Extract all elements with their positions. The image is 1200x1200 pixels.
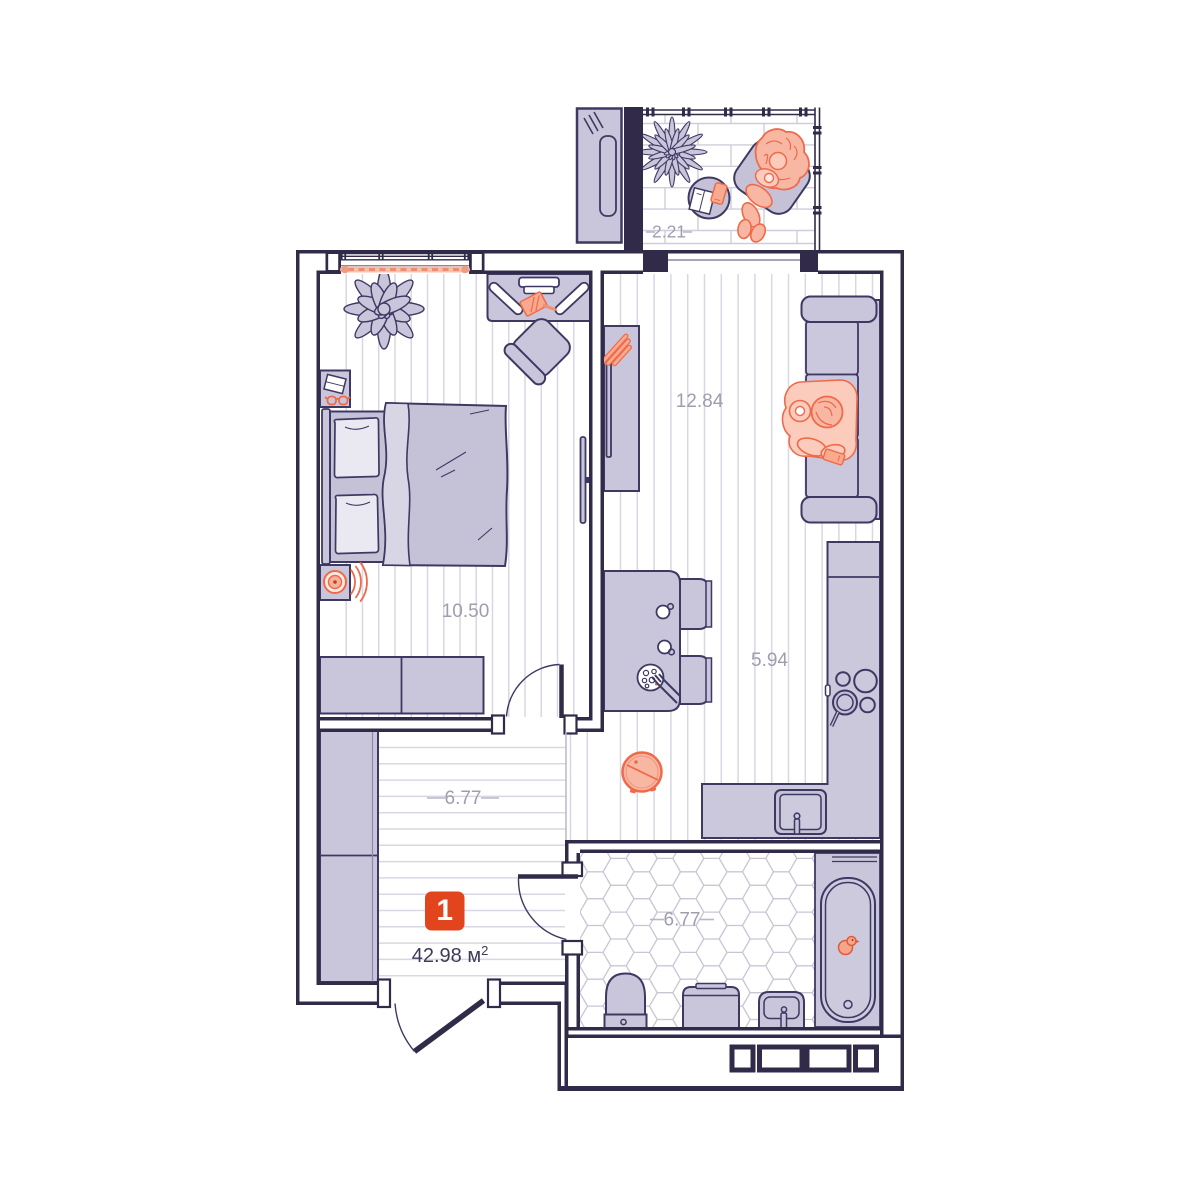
- svg-text:10.50: 10.50: [442, 601, 490, 622]
- svg-text:12.84: 12.84: [676, 391, 724, 412]
- svg-text:6.77: 6.77: [664, 910, 701, 931]
- svg-text:1: 1: [436, 894, 453, 927]
- svg-text:42.98 м2: 42.98 м2: [412, 943, 489, 968]
- svg-text:2.21: 2.21: [652, 222, 686, 242]
- svg-text:6.77: 6.77: [445, 788, 482, 809]
- svg-text:5.94: 5.94: [751, 650, 788, 671]
